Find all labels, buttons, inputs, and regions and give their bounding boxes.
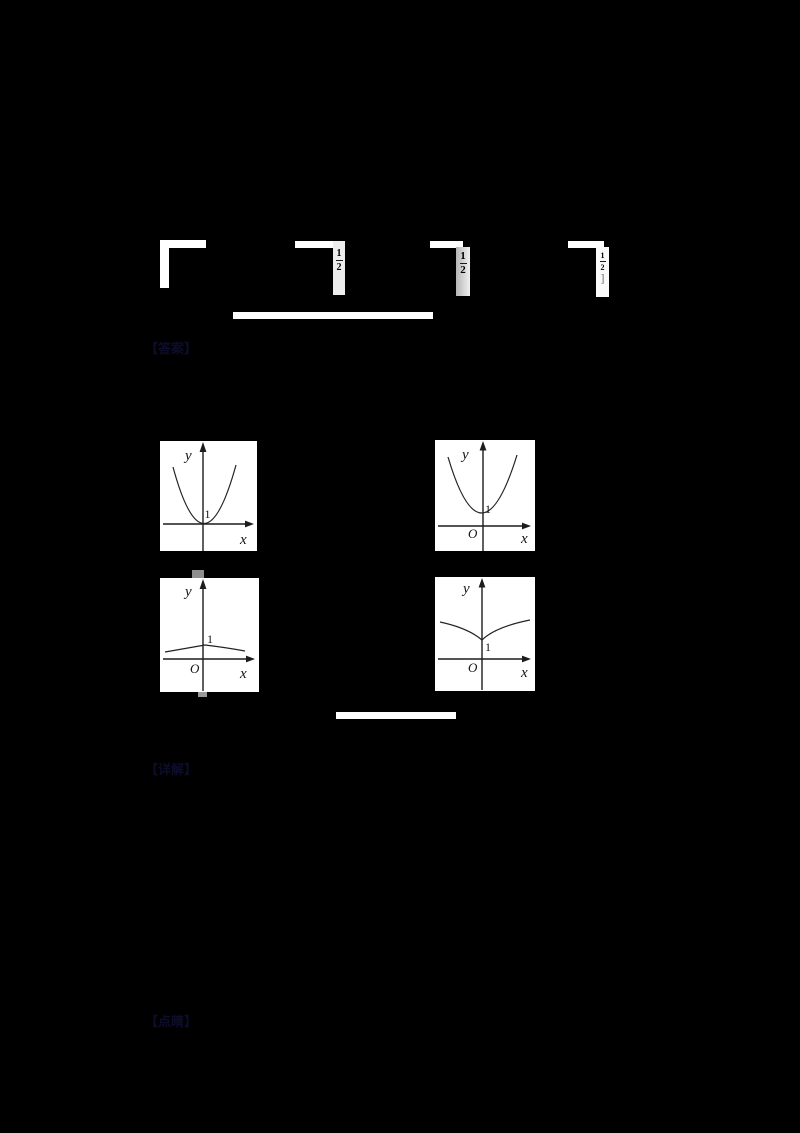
formula-fragment-2-top-edge [295,241,334,248]
fraction-denominator: 2 [337,262,342,273]
x-axis-arrowhead-icon [522,656,531,663]
x-axis-arrowhead-icon [522,523,531,530]
graph-d-figure: 1 O y x [435,577,535,691]
y-axis-label: y [183,584,192,600]
divider-bar [336,712,456,719]
bracket-glyph: ] [601,272,605,284]
x-axis-label: x [239,532,247,548]
y-axis-arrowhead-icon [480,441,487,451]
y-axis-label: y [461,581,470,597]
y-axis-arrowhead-icon [479,578,486,588]
y-axis-label: y [460,447,469,463]
origin-label: O [468,526,478,541]
graph-a-figure: 1 y x [160,441,257,551]
y-axis-label: y [183,448,192,464]
scan-smudge [198,692,207,697]
graph-panel-parabola-origin: 1 y x [160,441,257,551]
fraction-numerator: 1 [460,251,466,262]
fraction-numerator: 1 [337,248,342,259]
divider-bar [233,312,433,319]
cusp-curve [440,620,530,640]
fraction-denominator: 2 [460,265,466,276]
graph-c-figure: 1 O y x [160,578,259,692]
tick-label-one: 1 [485,502,491,516]
formula-fragment-3: 1 2 [456,247,470,296]
origin-label: O [190,661,200,676]
remark-label: 【点睛】 [145,1012,197,1032]
graph-panel-flat-peak: 1 O y x [160,578,259,692]
graph-panel-cusp: 1 O y x [435,577,535,691]
tick-label-one: 1 [485,640,491,654]
tick-label-one: 1 [207,632,213,646]
document-page: 1 2 1 2 1 2 ] 【答案】 1 y x [0,0,800,1133]
fraction-bar [600,261,606,262]
tick-label-one: 1 [205,507,211,521]
scan-smudge [192,570,204,578]
y-axis-arrowhead-icon [200,442,207,452]
y-axis-arrowhead-icon [200,579,207,589]
x-axis-label: x [520,531,528,547]
x-axis-arrowhead-icon [246,656,255,663]
formula-fragment-2: 1 2 [333,241,345,295]
formula-fragment-1-left-edge [160,240,169,288]
formula-fragment-4: 1 2 ] [596,247,609,297]
graph-panel-parabola-above-origin: 1 O y x [435,440,535,551]
explanation-label: 【详解】 [145,760,197,780]
x-axis-label: x [520,665,528,681]
fraction-bar [336,260,343,261]
fraction-numerator: 1 [601,251,605,260]
x-axis-arrowhead-icon [245,521,254,528]
x-axis-label: x [239,666,247,682]
flat-peak-curve [165,645,245,652]
origin-label: O [468,660,478,675]
graph-b-figure: 1 O y x [435,440,535,551]
answer-label: 【答案】 [145,339,197,359]
